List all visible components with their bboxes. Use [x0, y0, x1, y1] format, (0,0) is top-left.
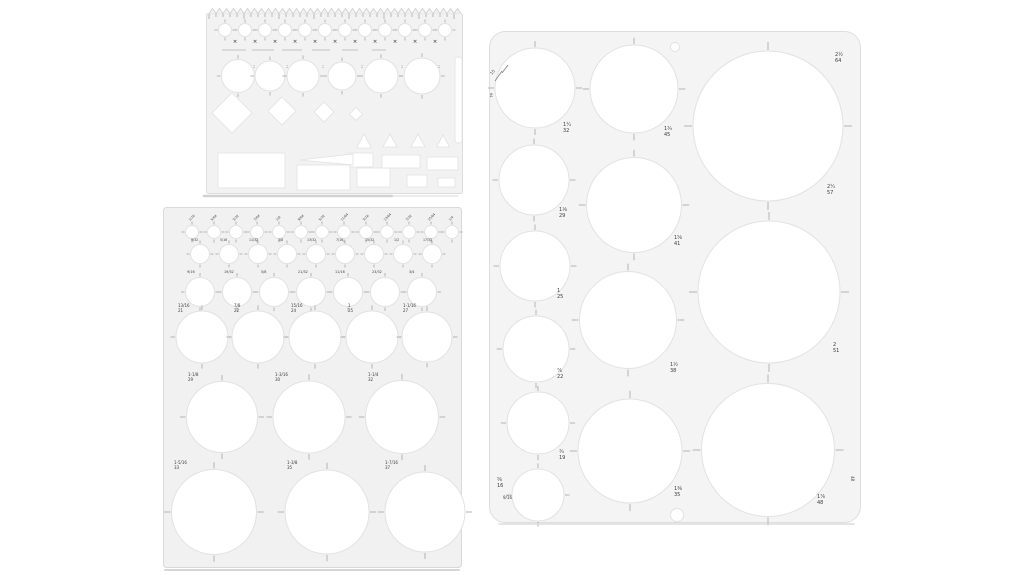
circle-cutout [381, 226, 394, 239]
dark-mark: : [253, 64, 255, 70]
circle-cutout [338, 226, 351, 239]
product-photo: ×××××××××××::::::1/165/643/327/641/89/64… [0, 0, 1024, 575]
size-label: 19/32 [224, 270, 234, 274]
graduated-circle-template: 1/165/643/327/641/89/645/3211/643/1613/6… [163, 207, 462, 568]
dark-mark: × [293, 39, 298, 45]
dark-mark: × [313, 39, 318, 45]
svg-text:19: 19 [559, 455, 565, 461]
dark-mark: : [286, 64, 288, 70]
svg-text:11/32: 11/32 [249, 238, 258, 242]
rect-cutout [427, 157, 458, 170]
circle-cutout [360, 226, 373, 239]
circle-cutout [191, 245, 210, 264]
circle-cutout [587, 158, 682, 253]
size-label: 5/16 [220, 238, 227, 242]
svg-text:16: 16 [497, 483, 503, 489]
circle-cutout [439, 24, 452, 37]
circle-cutout [255, 61, 285, 91]
size-label: 17/32 [423, 238, 432, 242]
svg-text:32: 32 [368, 377, 374, 382]
dark-mark: × [393, 39, 398, 45]
circle-cutout [287, 60, 319, 92]
size-label: 5/8 [261, 270, 266, 274]
small-multi-shape-template: ×××××××××××:::::: [206, 8, 463, 194]
circle-cutout [273, 381, 345, 453]
svg-text:64: 64 [489, 93, 493, 98]
svg-text:5/8: 5/8 [261, 270, 266, 274]
svg-text:33: 33 [174, 465, 180, 470]
circle-cutout [230, 226, 243, 239]
size-label: 11/16 [335, 270, 345, 274]
svg-text:45: 45 [664, 132, 670, 138]
circle-cutout [693, 51, 843, 201]
svg-text:27: 27 [403, 308, 409, 313]
size-label: 15/32 [365, 238, 374, 242]
svg-text:3/8: 3/8 [278, 238, 283, 242]
circle-cutout [239, 24, 252, 37]
svg-text:9/16: 9/16 [503, 495, 512, 500]
circle-cutout [299, 24, 312, 37]
svg-text:29: 29 [559, 213, 565, 219]
rect-cutout [297, 165, 350, 190]
svg-text:51: 51 [833, 348, 839, 354]
svg-text:1½: 1½ [670, 361, 678, 368]
svg-text:32: 32 [563, 128, 569, 134]
svg-text:17/32: 17/32 [423, 238, 432, 242]
rect-cutout [382, 155, 420, 168]
circle-cutout [285, 470, 369, 554]
circle-cutout [279, 24, 292, 37]
size-label: 7/16 [336, 238, 343, 242]
svg-text:21/32: 21/32 [298, 270, 308, 274]
circle-cutout [379, 24, 392, 37]
dark-mark: × [433, 39, 438, 45]
slot-cutout [455, 57, 462, 143]
svg-text:30: 30 [275, 377, 281, 382]
circle-cutout [259, 24, 272, 37]
svg-text:3/4: 3/4 [409, 270, 414, 274]
size-label: 64 [489, 93, 493, 98]
svg-text:25: 25 [348, 308, 354, 313]
circle-cutout [176, 311, 228, 363]
circle-cutout [222, 60, 255, 93]
circle-cutout [220, 245, 239, 264]
circle-cutout [446, 226, 459, 239]
circle-cutout [590, 45, 678, 133]
circle-cutout [425, 226, 438, 239]
svg-text:11/16: 11/16 [335, 270, 345, 274]
circle-cutout [499, 145, 569, 215]
circle-cutout [339, 24, 352, 37]
svg-text:24: 24 [291, 308, 297, 313]
svg-text:29: 29 [188, 377, 194, 382]
svg-text:25: 25 [557, 294, 563, 300]
dark-mark: × [353, 39, 358, 45]
dark-mark: : [401, 64, 403, 70]
svg-text:23/32: 23/32 [372, 270, 382, 274]
size-label: 3/4 [409, 270, 414, 274]
circle-cutout [419, 24, 432, 37]
svg-text:5/16: 5/16 [220, 238, 227, 242]
circle-cutout [186, 226, 199, 239]
rect-cutout [350, 153, 373, 167]
svg-text:2½: 2½ [835, 51, 843, 58]
circle-cutout [319, 24, 332, 37]
svg-text:15/32: 15/32 [365, 238, 374, 242]
dark-mark: × [273, 39, 278, 45]
circle-cutout [394, 245, 413, 264]
dark-mark: × [233, 39, 238, 45]
circle-cutout [316, 226, 329, 239]
circle-cutout [580, 272, 677, 369]
circle-cutout [295, 226, 308, 239]
circle-cutout [495, 48, 575, 128]
svg-text:57: 57 [827, 190, 833, 196]
circle-cutout [251, 226, 264, 239]
circle-cutout [385, 472, 465, 552]
svg-text:35: 35 [287, 465, 293, 470]
svg-text:41: 41 [674, 241, 680, 247]
dark-mark: × [333, 39, 338, 45]
circle-cutout [698, 221, 840, 363]
circle-cutout [578, 399, 682, 503]
circle-cutout [289, 311, 341, 363]
circle-cutout [273, 226, 286, 239]
circle-cutout [186, 278, 215, 307]
circle-cutout [208, 226, 221, 239]
circle-cutout [507, 392, 569, 454]
circle-cutout [307, 245, 326, 264]
dark-mark: : [361, 64, 363, 70]
circle-cutout [371, 278, 400, 307]
circle-cutout [260, 278, 289, 307]
circle-cutout [187, 382, 258, 453]
hang-hole [671, 509, 684, 522]
circle-cutout [328, 62, 356, 90]
circle-cutout [404, 58, 440, 94]
svg-text:9/16: 9/16 [187, 270, 195, 274]
circle-cutout [423, 245, 442, 264]
circle-cutout [249, 245, 268, 264]
dark-mark: × [373, 39, 378, 45]
svg-text:22: 22 [557, 374, 563, 380]
rect-cutout [438, 178, 455, 187]
circle-cutout [219, 24, 232, 37]
circle-cutout [359, 24, 372, 37]
svg-text:13/32: 13/32 [307, 238, 316, 242]
circle-cutout [172, 470, 257, 555]
circle-cutout [366, 381, 439, 454]
rect-cutout [218, 153, 285, 188]
svg-text:64: 64 [835, 58, 841, 64]
size-label: 11/32 [249, 238, 258, 242]
svg-text:7/16: 7/16 [336, 238, 343, 242]
circle-cutout [346, 311, 398, 363]
svg-text:37: 37 [385, 465, 391, 470]
size-label: 9/16 [503, 495, 512, 500]
circle-cutout [512, 469, 564, 521]
size-label: 3/8 [278, 238, 283, 242]
svg-text:9/32: 9/32 [191, 238, 198, 242]
svg-text:19/32: 19/32 [224, 270, 234, 274]
svg-text:38: 38 [670, 368, 676, 374]
circle-cutout [278, 245, 297, 264]
svg-text:48: 48 [817, 500, 823, 506]
size-label: 13/32 [307, 238, 316, 242]
large-circle-template: 1¼321¾452½642¼571⅛291251⅝41251⅞221½38¾19… [489, 31, 861, 523]
size-label: 21/32 [298, 270, 308, 274]
size-label: 1/2 [394, 238, 399, 242]
size-label: 9/16 [187, 270, 195, 274]
circle-cutout [403, 226, 416, 239]
circle-cutout [365, 245, 384, 264]
rect-cutout [357, 168, 390, 187]
svg-text:35: 35 [674, 492, 680, 498]
circle-cutout [232, 311, 284, 363]
size-label: 9/32 [191, 238, 198, 242]
hang-hole [671, 43, 680, 52]
size-label: 48 [850, 476, 855, 482]
svg-text:22: 22 [234, 308, 240, 313]
circle-cutout [702, 384, 835, 517]
svg-text:21: 21 [178, 308, 184, 313]
serrated-ruler-edge [209, 9, 461, 14]
svg-text:1/2: 1/2 [394, 238, 399, 242]
circle-cutout [399, 24, 412, 37]
dark-mark: × [253, 39, 258, 45]
circle-cutout [364, 59, 398, 93]
dark-mark: × [413, 39, 418, 45]
circle-cutout [402, 312, 452, 362]
svg-text:48: 48 [850, 476, 855, 482]
rect-cutout [407, 175, 427, 187]
size-label: 23/32 [372, 270, 382, 274]
dark-mark: : [438, 64, 440, 70]
circle-cutout [336, 245, 355, 264]
dark-mark: : [322, 64, 324, 70]
